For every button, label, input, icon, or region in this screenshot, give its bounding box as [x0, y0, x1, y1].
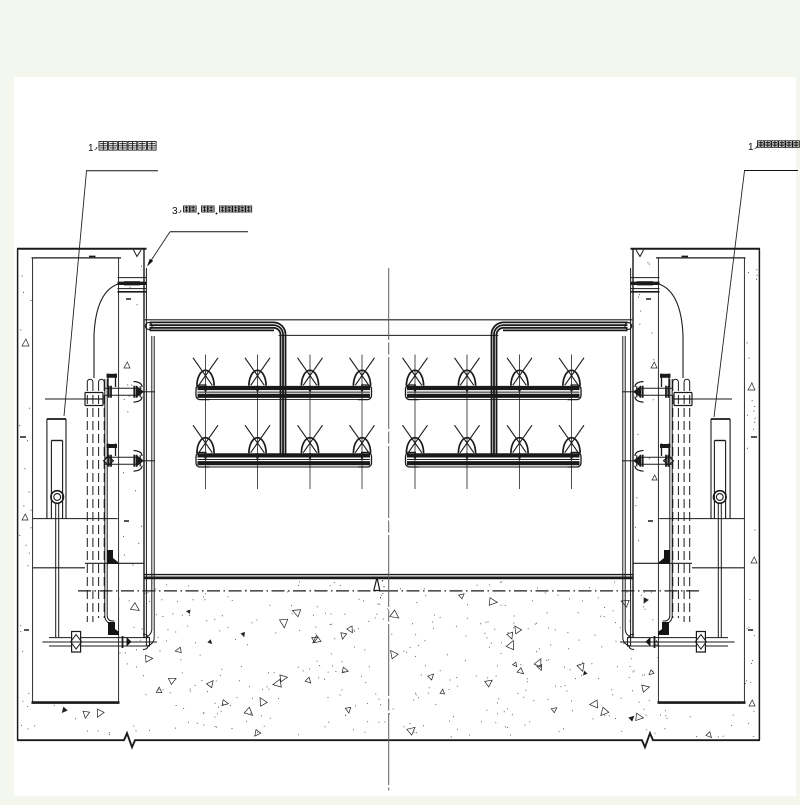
svg-text:3: 3: [172, 206, 178, 217]
svg-text:1: 1: [88, 143, 94, 154]
svg-text:1: 1: [748, 142, 754, 153]
